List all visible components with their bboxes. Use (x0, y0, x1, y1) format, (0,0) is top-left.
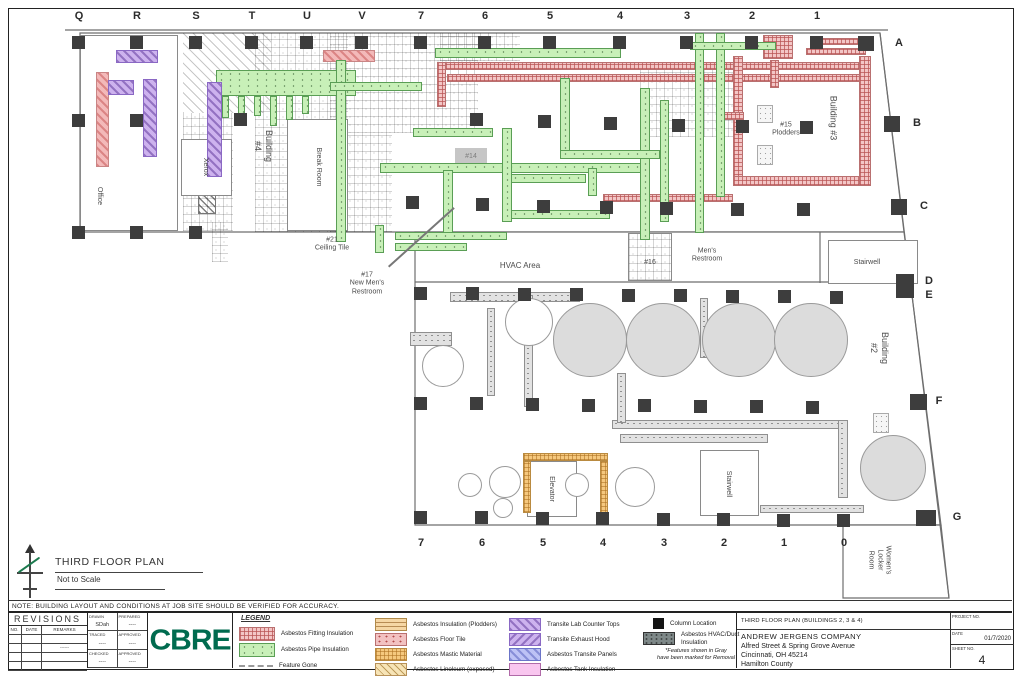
feature-fitting (806, 48, 866, 55)
feature-graybox: #14 (455, 148, 487, 164)
date-label: DATE (952, 631, 963, 636)
feature-pipe (375, 225, 384, 253)
column-marker (466, 287, 479, 300)
stamp-value: ---- (88, 659, 117, 665)
column-marker (234, 113, 247, 126)
revisions-col-header: REMARKS (42, 626, 87, 635)
legend-swatch-hood (509, 633, 541, 646)
legend-item: Asbestos Transite Panels (509, 647, 620, 662)
legend-swatch-fitting (239, 627, 275, 641)
column-marker (717, 513, 730, 526)
legend-label: Asbestos Floor Tile (413, 636, 466, 643)
feature-mastic (523, 461, 531, 513)
column-marker (674, 289, 687, 302)
legend-swatch-linoleum (375, 663, 407, 676)
column-marker (736, 120, 749, 133)
revisions-table: NO.DATEREMARKS------ (8, 626, 87, 671)
feature-counter (143, 79, 157, 157)
legend-title: LEGEND (241, 615, 270, 622)
stamp-value: ---- (88, 641, 117, 647)
grid-label-R: R (133, 10, 141, 22)
column-marker (778, 290, 791, 303)
feature-duct (410, 332, 452, 346)
feature-tank (553, 303, 627, 377)
legend-item: Asbestos Insulation (Plodders) (375, 617, 497, 632)
grid-label-6: 6 (479, 537, 485, 549)
address-line-3: Hamilton County (741, 660, 946, 669)
stamp-label: CHECKED (89, 651, 109, 656)
feature-fitting (859, 56, 871, 186)
legend-item: Asbestos Fitting Insulation (239, 626, 353, 642)
feature-circle (458, 473, 482, 497)
feature-duct (612, 420, 840, 429)
legend-label: Asbestos Pipe Insulation (281, 646, 349, 653)
plan-title-underline (55, 572, 203, 573)
column-marker (657, 513, 670, 526)
revisions-cell (8, 635, 22, 644)
feature-tank (860, 435, 926, 501)
revisions-cell (22, 653, 42, 662)
feature-fitting (447, 74, 865, 82)
column-marker (694, 400, 707, 413)
plan-label: Xerox (201, 158, 209, 176)
plan-label: #17 New Men's Restroom (350, 271, 384, 296)
legend-item: Asbestos HVAC/Duct Insulation (643, 631, 741, 646)
legend-label: Transite Lab Counter Tops (547, 621, 620, 628)
feature-tank (626, 303, 700, 377)
column-marker (884, 116, 900, 132)
grid-label-0: 0 (841, 537, 847, 549)
revisions-col-header: NO. (8, 626, 22, 635)
stamp-value: ---- (118, 659, 148, 665)
legend-column-4: Column LocationAsbestos HVAC/Duct Insula… (643, 616, 741, 662)
legend-item: Asbestos Linoleum (exposed) (375, 662, 497, 677)
plan-label: Stairwell (854, 259, 880, 267)
legend-block: LEGEND Asbestos Fitting InsulationAsbest… (233, 613, 737, 668)
feature-pipe (510, 174, 586, 183)
feature-fitting (437, 62, 446, 107)
legend-item: Asbestos Mastic Material (375, 647, 497, 662)
column-marker (475, 511, 488, 524)
feature-circle (489, 466, 521, 498)
feature-circle (615, 467, 655, 507)
column-marker (406, 196, 419, 209)
legend-label: Asbestos Insulation (Plodders) (413, 621, 497, 628)
column-marker (777, 514, 790, 527)
grid-label-A: A (895, 37, 903, 49)
grid-label-E: E (925, 289, 932, 301)
feature-pipe (640, 88, 650, 240)
legend-swatch-ductdark (643, 632, 675, 645)
column-marker (672, 119, 685, 132)
column-marker (910, 394, 927, 410)
feature-tank (774, 303, 848, 377)
plan-label: Elevator (547, 476, 555, 502)
legend-item: Asbestos Tank Insulation (509, 662, 620, 677)
feature-pipe (695, 33, 704, 233)
column-marker (800, 121, 813, 134)
column-marker (916, 510, 936, 526)
column-marker (830, 291, 843, 304)
legend-item: Feature Gone (239, 658, 353, 674)
column-marker (538, 115, 551, 128)
stamp-value: SDah (88, 622, 117, 628)
feature-fitting (733, 176, 871, 186)
legend-column-2: Asbestos Insulation (Plodders)Asbestos F… (375, 617, 497, 677)
feature-tank (702, 303, 776, 377)
grid-label-B: B (913, 117, 921, 129)
revisions-block: REVISIONS NO.DATEREMARKS------ (8, 613, 88, 668)
accuracy-note: NOTE: BUILDING LAYOUT AND CONDITIONS AT … (8, 600, 1012, 613)
legend-swatch-panels (509, 648, 541, 661)
legend-swatch-floortile (375, 633, 407, 646)
column-marker (810, 36, 823, 49)
stamp-value: ---- (118, 622, 148, 628)
date-cell: DATE 01/7/2020 (950, 630, 1014, 645)
feature-pipe (510, 210, 610, 219)
feature-tile (212, 222, 228, 262)
revisions-cell: ------ (42, 644, 87, 653)
feature-salmon (323, 50, 375, 62)
column-marker (476, 198, 489, 211)
grid-label-3: 3 (684, 10, 690, 22)
column-marker (680, 36, 693, 49)
cbre-logo: CBRE (149, 624, 230, 656)
plan-label: #21 Ceiling Tile (315, 237, 349, 254)
feature-fitting (770, 60, 779, 88)
north-arrow-crossbar (17, 572, 43, 574)
sheet-no-cell: SHEET NO. 4 (950, 645, 1014, 669)
feature-tilebox (628, 233, 672, 281)
feature-mastic (523, 453, 608, 461)
drawing-title: THIRD FLOOR PLAN (BUILDINGS 2, 3 & 4) (737, 613, 950, 630)
north-arrow-shaft (29, 552, 31, 598)
stamp-value: ---- (118, 641, 148, 647)
legend-swatch-mastic (375, 648, 407, 661)
grid-label-7: 7 (418, 10, 424, 22)
column-marker (604, 117, 617, 130)
plan-label: Building #4 (252, 130, 274, 162)
feature-circle (422, 345, 464, 387)
feature-pipe (560, 78, 570, 154)
stamp-label: APPROVED (119, 651, 141, 656)
feature-pipe (222, 96, 229, 118)
feature-duct (617, 373, 626, 423)
company-name: ANDREW JERGENS COMPANY (741, 632, 946, 642)
column-marker (537, 200, 550, 213)
column-marker (726, 290, 739, 303)
stamp-cell-checked: CHECKED---- (88, 650, 118, 668)
legend-column-3: Transite Lab Counter TopsTransite Exhaus… (509, 617, 620, 677)
plan-label: Women's Locker Room (866, 546, 891, 575)
plan-label: Men's Restroom (692, 248, 722, 265)
legend-item: Transite Exhaust Hood (509, 632, 620, 647)
feature-pipe (716, 33, 725, 197)
feature-counter (207, 82, 222, 177)
column-marker (189, 226, 202, 239)
column-marker (570, 288, 583, 301)
feature-pipe (395, 232, 507, 240)
plan-scale-underline (55, 589, 165, 590)
feature-pipe (413, 128, 493, 137)
column-marker (622, 289, 635, 302)
column-marker (130, 226, 143, 239)
grid-label-2: 2 (721, 537, 727, 549)
column-marker (355, 36, 368, 49)
stamp-label: TRACED (89, 632, 105, 637)
grid-label-Q: Q (75, 10, 84, 22)
date-value: 01/7/2020 (984, 636, 1011, 642)
sheet-no-value: 4 (950, 653, 1014, 667)
project-info: ANDREW JERGENS COMPANY Alfred Street & S… (737, 630, 950, 671)
column-marker (543, 36, 556, 49)
revisions-cell (42, 653, 87, 662)
stamp-cell-prepared: PREPARED---- (118, 613, 148, 631)
column-marker (414, 287, 427, 300)
legend-item: Column Location (643, 616, 741, 631)
column-marker (72, 226, 85, 239)
grid-label-D: D (925, 275, 933, 287)
legend-label: Asbestos Linoleum (exposed) (413, 666, 495, 673)
feature-pipe (588, 168, 597, 196)
feature-pipe (690, 42, 776, 50)
plan-label: Break Room (314, 148, 322, 187)
revisions-cell (8, 644, 22, 653)
column-marker (130, 36, 143, 49)
stamp-cell-traced: TRACED---- (88, 631, 118, 649)
column-marker (806, 401, 819, 414)
revisions-cell (42, 635, 87, 644)
column-marker (526, 398, 539, 411)
column-marker (596, 512, 609, 525)
column-marker (660, 202, 673, 215)
plan-label: #16 (644, 259, 656, 267)
revisions-cell (22, 644, 42, 653)
plan-title: THIRD FLOOR PLAN (55, 556, 165, 568)
legend-swatch-counter (509, 618, 541, 631)
revisions-title: REVISIONS (8, 613, 87, 626)
column-marker (72, 36, 85, 49)
legend-item: Transite Lab Counter Tops (509, 617, 620, 632)
title-block: THIRD FLOOR PLAN (BUILDINGS 2, 3 & 4) AN… (737, 613, 1014, 668)
address-line-2: Cincinnati, OH 45214 (741, 651, 946, 660)
project-no-label: PROJECT NO. (952, 614, 980, 619)
legend-swatch-plodder (375, 618, 407, 631)
floor-plan-canvas: #14OfficeXeroxBuilding #4Break Room#21 C… (0, 0, 1024, 680)
stamp-label: PREPARED (119, 614, 141, 619)
grid-label-2: 2 (749, 10, 755, 22)
north-arrow-base (23, 588, 37, 590)
column-marker (613, 36, 626, 49)
legend-swatch-pipe (239, 643, 275, 657)
column-marker (130, 114, 143, 127)
feature-pipe (254, 96, 261, 116)
column-marker (414, 36, 427, 49)
column-marker (72, 114, 85, 127)
plan-scale: Not to Scale (57, 575, 101, 584)
feature-duct (620, 434, 768, 443)
column-marker (891, 199, 907, 215)
revisions-cell (42, 662, 87, 671)
grid-label-5: 5 (547, 10, 553, 22)
column-marker (750, 400, 763, 413)
column-marker (600, 201, 613, 214)
column-marker (245, 36, 258, 49)
stamp-label: DRAWN (89, 614, 104, 619)
column-marker (414, 397, 427, 410)
column-marker (638, 399, 651, 412)
grid-label-4: 4 (617, 10, 623, 22)
grid-label-U: U (303, 10, 311, 22)
feature-duct (487, 308, 495, 396)
feature-circle (505, 298, 553, 346)
plan-label: Office (95, 187, 103, 205)
grid-label-7: 7 (418, 537, 424, 549)
feature-duct (760, 505, 864, 513)
legend-swatch-colsq (653, 618, 664, 629)
column-marker (797, 203, 810, 216)
column-marker (837, 514, 850, 527)
stamp-cell-approved: APPROVED---- (118, 650, 148, 668)
column-marker (582, 399, 595, 412)
logo-cell: CBRE (148, 613, 233, 668)
revisions-cell (22, 662, 42, 671)
feature-counter (116, 50, 158, 63)
grid-label-G: G (953, 511, 962, 523)
feature-circle (493, 498, 513, 518)
title-block-right: PROJECT NO. DATE 01/7/2020 SHEET NO. 4 (950, 613, 1014, 668)
grid-label-3: 3 (661, 537, 667, 549)
legend-label: Column Location (670, 620, 716, 627)
column-marker (858, 36, 874, 51)
feature-dotbox (757, 145, 773, 165)
plan-label: Building #2 (868, 332, 890, 364)
legend-label: Asbestos Tank Insulation (547, 666, 615, 673)
feature-fitting (437, 62, 865, 70)
column-marker (414, 511, 427, 524)
stamp-cell-drawn: DRAWNSDah (88, 613, 118, 631)
feature-pipe (502, 128, 512, 222)
legend-label: Asbestos Transite Panels (547, 651, 617, 658)
sheet-no-label: SHEET NO. (952, 646, 975, 651)
feature-pipe (286, 96, 293, 120)
grid-label-T: T (249, 10, 256, 22)
legend-label: Transite Exhaust Hood (547, 636, 610, 643)
grid-label-S: S (192, 10, 199, 22)
title-block-left: THIRD FLOOR PLAN (BUILDINGS 2, 3 & 4) AN… (737, 613, 951, 668)
grid-label-1: 1 (814, 10, 820, 22)
legend-label: Asbestos Fitting Insulation (281, 630, 353, 637)
feature-counter (108, 80, 134, 95)
legend-swatch-tanksol (509, 663, 541, 676)
plan-label: Building #3 (828, 96, 839, 141)
legend-item: Asbestos Floor Tile (375, 632, 497, 647)
legend-removal-note: *Features shown in Gray have been marked… (651, 648, 741, 662)
column-marker (536, 512, 549, 525)
address-line-1: Alfred Street & Spring Grove Avenue (741, 642, 946, 651)
feature-dotbox (873, 413, 889, 433)
plan-label: Stairwell (724, 471, 732, 497)
feature-circle (565, 473, 589, 497)
stamp-cell-approved: APPROVED---- (118, 631, 148, 649)
revisions-cell (8, 662, 22, 671)
feature-dotbox (757, 105, 773, 123)
column-marker (745, 36, 758, 49)
legend-label: Asbestos Mastic Material (413, 651, 482, 658)
legend-column-1: Asbestos Fitting InsulationAsbestos Pipe… (239, 626, 353, 674)
grid-label-C: C (920, 200, 928, 212)
grid-label-4: 4 (600, 537, 606, 549)
feature-pipe (270, 96, 277, 126)
column-marker (470, 397, 483, 410)
column-marker (189, 36, 202, 49)
feature-diagdark (198, 194, 216, 214)
legend-item: Asbestos Pipe Insulation (239, 642, 353, 658)
column-marker (518, 288, 531, 301)
project-no-cell: PROJECT NO. (950, 613, 1014, 630)
column-marker (478, 36, 491, 49)
feature-pipe (443, 170, 453, 240)
feature-mastic (600, 461, 608, 516)
grid-label-5: 5 (540, 537, 546, 549)
revisions-cell (22, 635, 42, 644)
revisions-col-header: DATE (22, 626, 42, 635)
feature-pipe (560, 150, 660, 159)
column-marker (731, 203, 744, 216)
column-marker (470, 113, 483, 126)
column-marker (896, 274, 914, 298)
stamp-label: APPROVED (119, 632, 141, 637)
grid-label-6: 6 (482, 10, 488, 22)
legend-label: Asbestos HVAC/Duct Insulation (681, 631, 739, 645)
feature-pipe (330, 82, 422, 91)
grid-label-1: 1 (781, 537, 787, 549)
plan-label: HVAC Area (500, 261, 540, 271)
column-marker (300, 36, 313, 49)
grid-label-V: V (358, 10, 365, 22)
feature-pipe (302, 96, 309, 114)
stamp-block: DRAWNSDahPREPARED----TRACED----APPROVED-… (88, 613, 148, 668)
feature-pipe (435, 48, 621, 58)
plan-label: #15 Plodders (772, 122, 800, 139)
legend-label: Feature Gone (279, 662, 317, 669)
feature-duct (838, 420, 848, 498)
legend-swatch-gone (239, 665, 273, 667)
grid-label-F: F (936, 395, 943, 407)
revisions-cell (8, 653, 22, 662)
